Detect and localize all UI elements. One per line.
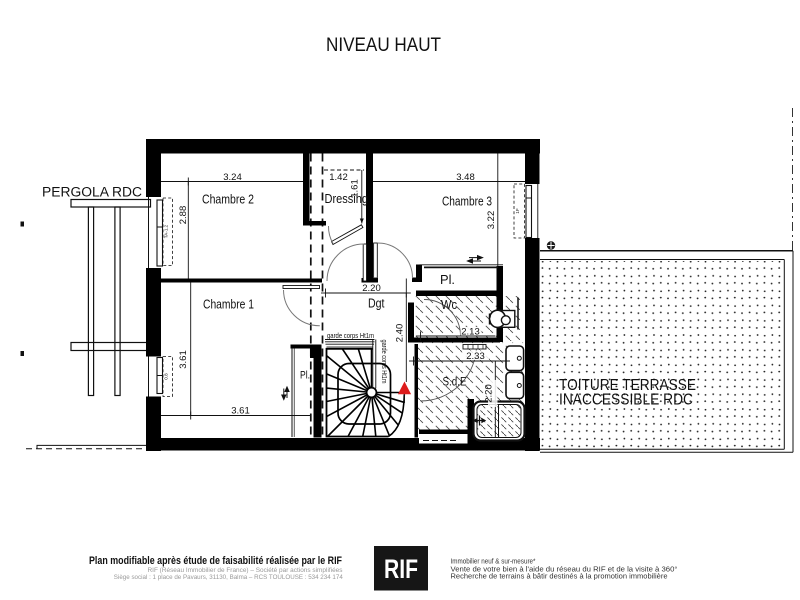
svg-text:3.24: 3.24	[223, 172, 242, 183]
svg-text:3.22: 3.22	[486, 211, 497, 230]
svg-text:Chambre 1: Chambre 1	[203, 297, 254, 312]
svg-text:Pl.: Pl.	[300, 370, 310, 382]
svg-text:1.42: 1.42	[329, 172, 348, 183]
svg-text:TA-1.2: TA-1.2	[164, 224, 169, 238]
svg-text:3.61: 3.61	[231, 406, 250, 417]
svg-text:NIVEAU HAUT: NIVEAU HAUT	[326, 35, 441, 56]
svg-text:Siège social : 1 place de Pava: Siège social : 1 place de Pavaurs, 31130…	[114, 574, 343, 581]
svg-text:3.61: 3.61	[178, 350, 189, 369]
svg-text:Wc: Wc	[441, 298, 457, 312]
svg-text:Chambre 3: Chambre 3	[442, 194, 492, 209]
svg-text:2.20: 2.20	[484, 384, 495, 403]
svg-text:PERGOLA RDC: PERGOLA RDC	[42, 185, 142, 200]
svg-text:garde corps Ht1m: garde corps Ht1m	[380, 340, 389, 384]
svg-text:garde corps Ht1m: garde corps Ht1m	[327, 331, 374, 340]
svg-text:Recherche de terrains à bâtir: Recherche de terrains à bâtir destinés à…	[451, 572, 668, 581]
svg-text:RIF: RIF	[384, 554, 418, 584]
svg-text:2.33: 2.33	[466, 351, 485, 362]
svg-text:3.48: 3.48	[456, 172, 475, 183]
svg-text:S.d.E: S.d.E	[443, 375, 467, 389]
svg-text:2.13: 2.13	[461, 327, 480, 338]
svg-text:2.88: 2.88	[178, 206, 189, 225]
svg-text:INACCESSIBLE RDC: INACCESSIBLE RDC	[559, 392, 693, 409]
svg-text:Plan modifiable après étude de: Plan modifiable après étude de faisabili…	[89, 555, 342, 567]
svg-text:Dgt: Dgt	[368, 295, 385, 310]
svg-text:Pl.: Pl.	[440, 273, 455, 287]
svg-text:2.20: 2.20	[362, 283, 381, 294]
svg-text:2.40: 2.40	[395, 324, 406, 343]
svg-text:Chambre 2: Chambre 2	[202, 191, 254, 206]
svg-text:1F: 1F	[515, 208, 520, 214]
svg-text:Dressing: Dressing	[325, 191, 369, 206]
svg-text:0.8: 0.8	[164, 373, 169, 380]
